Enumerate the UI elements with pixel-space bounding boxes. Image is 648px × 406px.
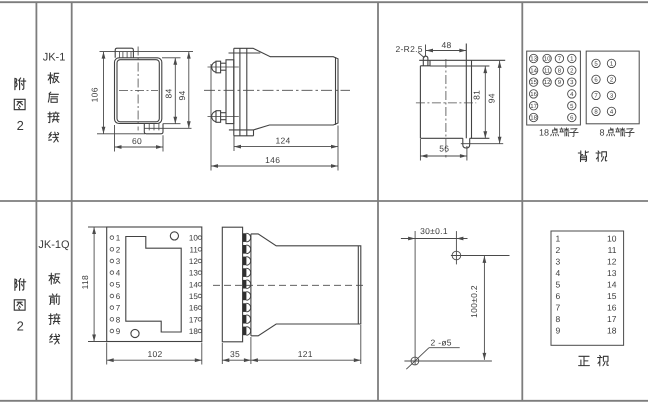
svg-text:100±0.2: 100±0.2 — [469, 285, 479, 318]
svg-text:84: 84 — [163, 88, 173, 98]
svg-text:124: 124 — [275, 136, 290, 146]
svg-text:11: 11 — [544, 67, 551, 74]
svg-text:6: 6 — [556, 291, 561, 301]
svg-text:12: 12 — [544, 79, 551, 86]
svg-text:1: 1 — [116, 234, 121, 243]
svg-text:56: 56 — [439, 144, 449, 154]
svg-text:102: 102 — [147, 349, 162, 359]
svg-text:16: 16 — [607, 302, 617, 312]
svg-text:118: 118 — [80, 275, 90, 289]
svg-text:6: 6 — [116, 292, 121, 301]
svg-text:18: 18 — [539, 128, 549, 138]
svg-text:3: 3 — [116, 257, 121, 266]
svg-text:48: 48 — [441, 40, 451, 50]
svg-text:94: 94 — [487, 93, 497, 103]
svg-text:12: 12 — [189, 257, 198, 266]
svg-text:30±0.1: 30±0.1 — [420, 226, 448, 236]
svg-text:JK-1Q: JK-1Q — [38, 239, 70, 251]
svg-text:2: 2 — [116, 245, 121, 254]
svg-text:12: 12 — [607, 257, 617, 267]
svg-text:60: 60 — [132, 136, 142, 146]
svg-text:146: 146 — [265, 155, 280, 165]
svg-text:18: 18 — [530, 115, 537, 122]
svg-text:14: 14 — [530, 67, 537, 74]
svg-text:2: 2 — [17, 118, 24, 133]
svg-text:16: 16 — [530, 91, 537, 98]
svg-text:15: 15 — [530, 79, 537, 86]
svg-text:11: 11 — [189, 245, 198, 254]
svg-text:10: 10 — [544, 56, 551, 63]
svg-text:9: 9 — [556, 325, 561, 335]
svg-text:2: 2 — [556, 245, 561, 255]
svg-text:94: 94 — [177, 90, 187, 100]
svg-text:121: 121 — [298, 349, 313, 359]
svg-text:81: 81 — [471, 90, 481, 100]
svg-text:10: 10 — [189, 234, 198, 243]
svg-text:10: 10 — [607, 234, 617, 244]
svg-text:2: 2 — [17, 319, 24, 334]
svg-text:4: 4 — [116, 269, 121, 278]
svg-text:8: 8 — [599, 128, 604, 138]
svg-text:4: 4 — [556, 268, 561, 278]
svg-text:14: 14 — [189, 280, 198, 289]
svg-text:15: 15 — [189, 292, 198, 301]
svg-text:18: 18 — [189, 327, 198, 336]
svg-text:3: 3 — [556, 257, 561, 267]
svg-text:15: 15 — [607, 291, 617, 301]
svg-text:8: 8 — [556, 314, 561, 324]
svg-text:7: 7 — [556, 302, 561, 312]
svg-text:18: 18 — [607, 325, 617, 335]
svg-text:17: 17 — [607, 314, 617, 324]
svg-text:11: 11 — [608, 245, 617, 255]
svg-text:8: 8 — [116, 315, 121, 324]
svg-text:9: 9 — [116, 327, 121, 336]
svg-text:13: 13 — [607, 268, 617, 278]
svg-text:13: 13 — [189, 269, 198, 278]
svg-text:7: 7 — [116, 304, 121, 313]
svg-text:17: 17 — [530, 103, 537, 110]
svg-text:13: 13 — [530, 56, 537, 63]
svg-text:16: 16 — [189, 304, 198, 313]
svg-text:JK-1: JK-1 — [43, 51, 66, 63]
svg-text:5: 5 — [556, 280, 561, 290]
svg-text:35: 35 — [230, 349, 240, 359]
svg-text:14: 14 — [607, 280, 617, 290]
svg-text:5: 5 — [116, 280, 121, 289]
svg-text:17: 17 — [189, 315, 198, 324]
svg-text:106: 106 — [89, 87, 99, 102]
svg-text:1: 1 — [556, 234, 561, 244]
svg-text:2 -ø5: 2 -ø5 — [431, 338, 452, 348]
